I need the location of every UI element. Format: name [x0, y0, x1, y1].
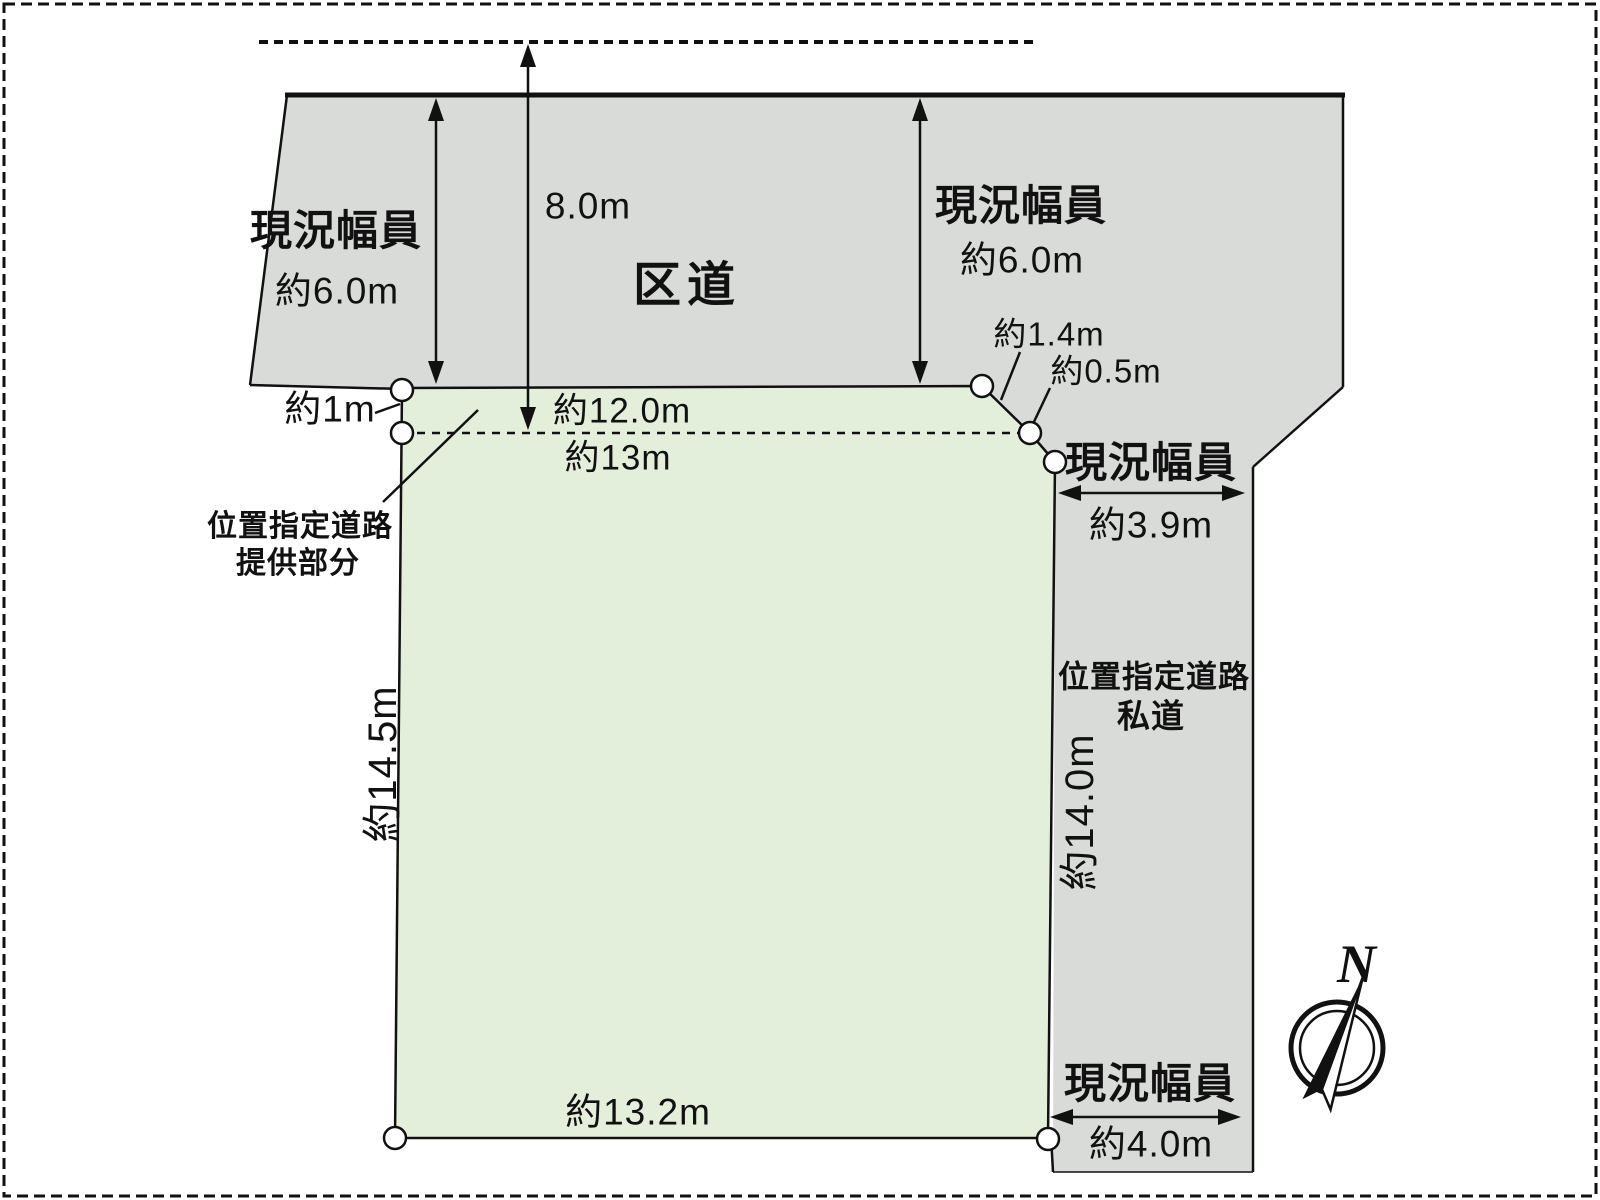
- leader-setback-depth: [375, 404, 400, 413]
- ward-road-right-width-label: 現況幅員: [935, 185, 1107, 227]
- private-road-bottom-width-value: 約4.0m: [1089, 1126, 1213, 1163]
- private-road-name-line1: 位置指定道路: [1058, 662, 1250, 693]
- boundary-marker: [1044, 451, 1066, 473]
- plot-bottom-width-value: 約13.2m: [565, 1094, 711, 1131]
- private-road-depth-value: 約14.0m: [1060, 733, 1100, 890]
- ward-road-left-width-label: 現況幅員: [250, 210, 422, 252]
- provided-area-label-line2: 提供部分: [236, 549, 360, 579]
- arrowhead-up-icon: [520, 44, 536, 67]
- ward-road-left-width-value: 約6.0m: [275, 273, 399, 310]
- boundary-marker: [1019, 422, 1041, 444]
- plot-front-width-total: 約13m: [564, 441, 671, 476]
- boundary-marker: [971, 375, 993, 397]
- ward-road-name: 区道: [633, 262, 741, 310]
- corner-cut-upper-value: 約1.4m: [993, 318, 1104, 351]
- corner-cut-lower-value: 約0.5m: [1050, 355, 1161, 388]
- private-road-top-width-label: 現況幅員: [1065, 442, 1237, 484]
- private-road-bottom-width-label: 現況幅員: [1064, 1063, 1236, 1105]
- land-plot-diagram: 現況幅員 約6.0m 8.0m 区道 現況幅員 約6.0m 約1.4m 約0.5…: [0, 0, 1600, 1200]
- ward-road-planned-width: 8.0m: [545, 188, 631, 225]
- ward-road-right-width-value: 約6.0m: [960, 242, 1084, 279]
- boundary-marker: [1037, 1128, 1059, 1150]
- boundary-marker: [384, 1127, 406, 1149]
- private-road-name-line2: 私道: [1117, 700, 1185, 733]
- boundary-marker: [391, 379, 413, 401]
- private-road-top-width-value: 約3.9m: [1089, 507, 1213, 544]
- plot-left-depth-value: 約14.5m: [363, 685, 403, 842]
- plot-front-width-setback: 約12.0m: [553, 394, 691, 429]
- compass-north-label: N: [1337, 937, 1377, 991]
- boundary-marker: [391, 422, 413, 444]
- provided-area-label-line1: 位置指定道路: [207, 512, 393, 542]
- plan-drawing: [0, 0, 1600, 1200]
- plot-area: [395, 386, 1055, 1138]
- setback-depth-value: 約1m: [284, 391, 375, 428]
